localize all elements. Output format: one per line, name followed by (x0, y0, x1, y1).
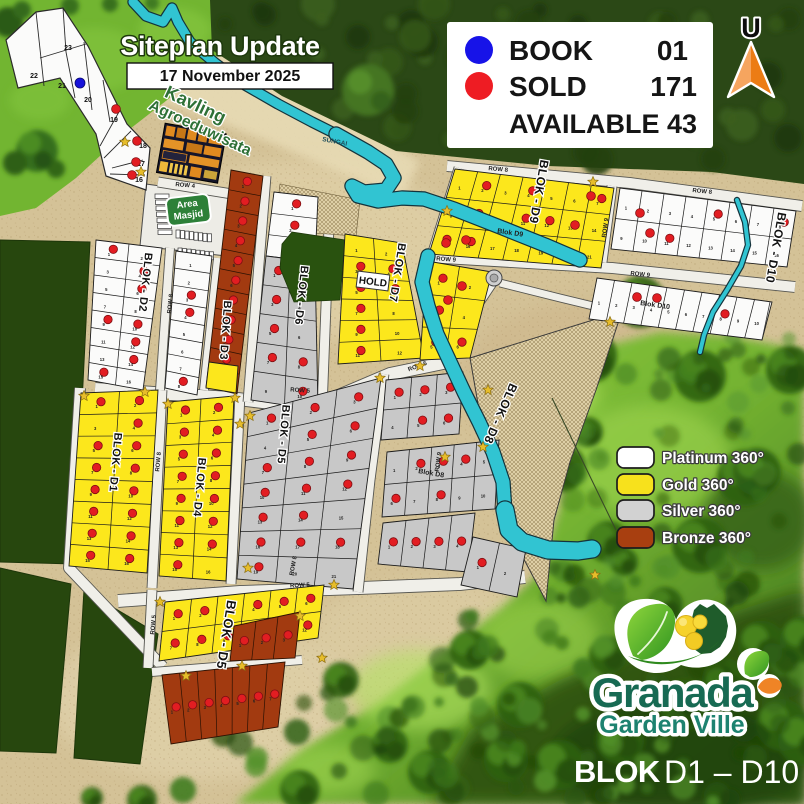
svg-text:19: 19 (110, 117, 118, 124)
svg-text:14: 14 (207, 547, 212, 552)
svg-text:14: 14 (592, 228, 597, 233)
svg-text:11: 11 (664, 241, 669, 246)
svg-text:21: 21 (587, 255, 592, 260)
svg-text:10: 10 (209, 501, 214, 506)
svg-text:12: 12 (208, 524, 213, 529)
svg-text:11: 11 (301, 491, 306, 496)
svg-text:SOLD: SOLD (509, 71, 587, 102)
svg-text:12: 12 (302, 628, 307, 633)
svg-text:14: 14 (730, 248, 735, 253)
svg-text:11: 11 (356, 353, 361, 358)
svg-text:16: 16 (124, 561, 129, 566)
svg-text:18: 18 (514, 248, 519, 253)
svg-text:11: 11 (175, 523, 180, 528)
svg-text:21: 21 (58, 83, 66, 90)
svg-text:10: 10 (132, 327, 137, 332)
svg-text:Silver 360°: Silver 360° (662, 503, 741, 520)
svg-text:14: 14 (128, 362, 133, 367)
svg-text:15: 15 (339, 516, 344, 521)
svg-text:16: 16 (206, 569, 211, 574)
svg-text:17 November 2025: 17 November 2025 (160, 68, 301, 85)
svg-text:171: 171 (650, 71, 697, 102)
svg-text:ROW 5: ROW 5 (290, 582, 311, 589)
svg-text:11: 11 (88, 514, 93, 519)
svg-text:AVAILABLE 43: AVAILABLE 43 (509, 109, 697, 139)
svg-text:Granada: Granada (592, 669, 755, 716)
svg-text:13: 13 (100, 357, 105, 362)
svg-text:10: 10 (260, 495, 265, 500)
svg-text:19: 19 (253, 569, 258, 574)
svg-text:U: U (741, 13, 761, 43)
svg-text:12: 12 (686, 243, 691, 248)
svg-text:12: 12 (342, 487, 347, 492)
svg-text:D1 – D10: D1 – D10 (664, 754, 799, 790)
svg-text:23: 23 (64, 45, 72, 52)
svg-text:13: 13 (173, 545, 178, 550)
svg-text:Garden Ville: Garden Ville (599, 711, 745, 739)
svg-text:21: 21 (332, 574, 337, 579)
svg-text:17: 17 (295, 545, 300, 550)
svg-text:14: 14 (298, 518, 303, 523)
svg-text:12: 12 (127, 516, 132, 521)
svg-text:16: 16 (256, 545, 261, 550)
svg-text:16: 16 (126, 380, 131, 385)
svg-text:BLOK: BLOK (574, 754, 661, 789)
svg-text:10: 10 (128, 493, 133, 498)
svg-text:Platinum 360°: Platinum 360° (662, 450, 764, 467)
svg-text:Gold 360°: Gold 360° (662, 477, 734, 494)
svg-text:Bronze 360°: Bronze 360° (662, 530, 751, 547)
svg-text:10: 10 (481, 494, 486, 499)
svg-text:17: 17 (490, 246, 495, 251)
svg-text:18: 18 (335, 545, 340, 550)
svg-text:13: 13 (708, 246, 713, 251)
svg-text:12: 12 (397, 351, 402, 356)
svg-text:10: 10 (754, 321, 759, 326)
svg-text:15: 15 (98, 375, 103, 380)
svg-text:10: 10 (642, 238, 647, 243)
svg-text:22: 22 (30, 73, 38, 80)
svg-text:12: 12 (130, 344, 135, 349)
svg-text:10: 10 (297, 394, 302, 399)
svg-text:11: 11 (521, 221, 526, 226)
svg-text:BOOK: BOOK (509, 35, 593, 66)
svg-text:10: 10 (395, 331, 400, 336)
svg-text:15: 15 (752, 250, 757, 255)
svg-text:13: 13 (87, 536, 92, 541)
svg-text:20: 20 (84, 97, 92, 104)
svg-text:14: 14 (126, 538, 131, 543)
svg-text:16: 16 (135, 177, 143, 184)
svg-text:15: 15 (172, 567, 177, 572)
svg-text:01: 01 (657, 35, 688, 66)
svg-text:12: 12 (544, 223, 549, 228)
svg-text:13: 13 (258, 520, 263, 525)
svg-text:11: 11 (101, 340, 106, 345)
svg-text:Siteplan Update: Siteplan Update (120, 31, 320, 61)
svg-text:15: 15 (85, 558, 90, 563)
